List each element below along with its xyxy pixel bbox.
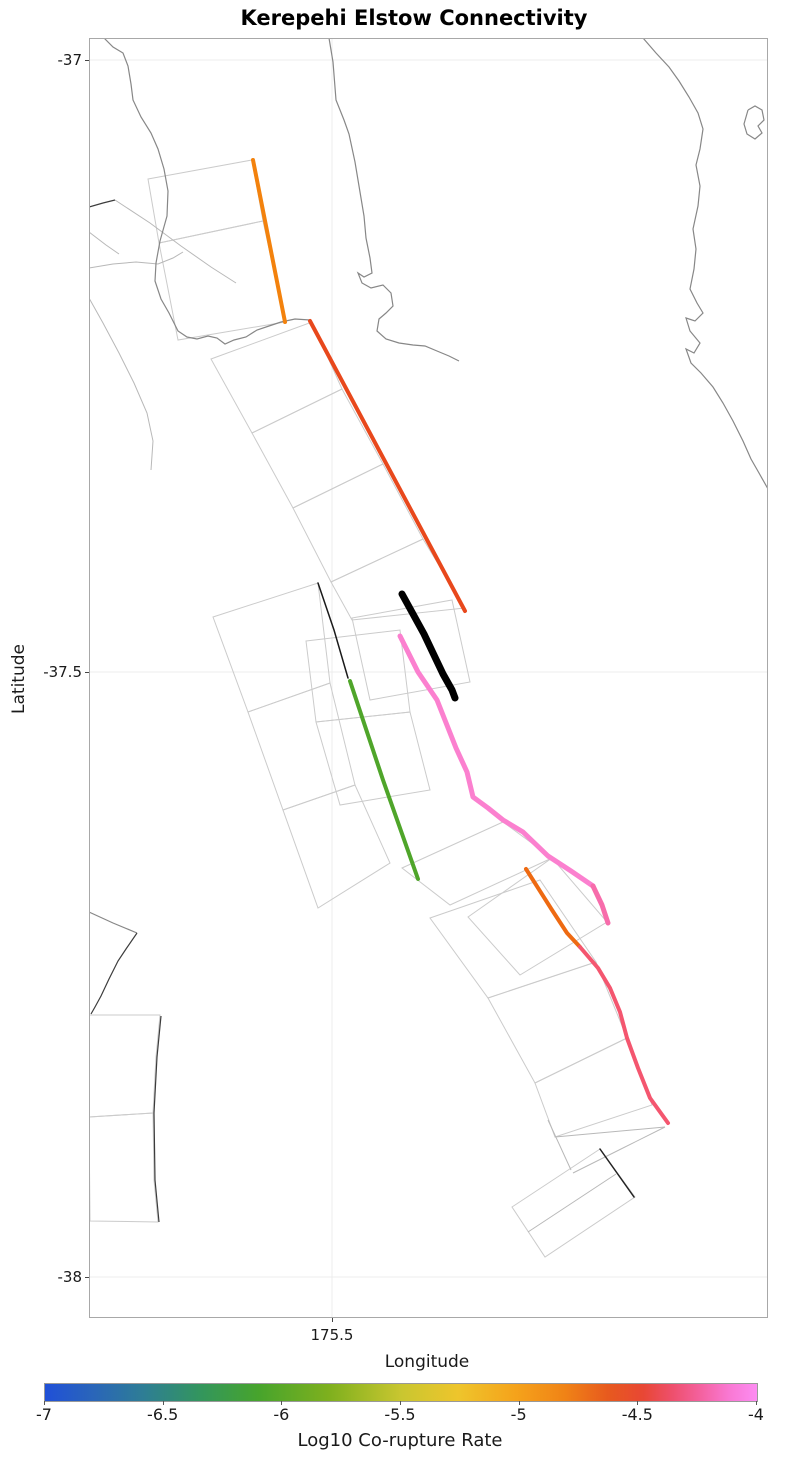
figure: Kerepehi Elstow Connectivity Latitude -3… [0,0,800,1465]
y-tick-mark [85,60,89,61]
map-plot [89,38,768,1318]
colorbar-tick-label: -6 [251,1405,311,1424]
colorbar-tick-label: -4.5 [607,1405,667,1424]
colorbar-tick-label: -5.5 [370,1405,430,1424]
colorbar-tick-label: -7 [14,1405,74,1424]
colorbar-gradient [44,1383,758,1402]
colorbar-tick-label: -6.5 [133,1405,193,1424]
chart-title: Kerepehi Elstow Connectivity [28,6,800,30]
colorbar-tick-label: -4 [726,1405,786,1424]
y-tick-mark [85,672,89,673]
x-tick-label-175-5: 175.5 [292,1326,372,1344]
y-tick-label--37-5: -37.5 [20,663,82,681]
colorbar-tick-label: -5 [489,1405,549,1424]
x-axis-label: Longitude [347,1352,507,1372]
y-tick-label--37: -37 [20,51,82,69]
y-tick-mark [85,1277,89,1278]
y-tick-label--38: -38 [20,1268,82,1286]
colorbar-label: Log10 Co-rupture Rate [200,1430,600,1451]
x-tick-mark [332,1318,333,1322]
